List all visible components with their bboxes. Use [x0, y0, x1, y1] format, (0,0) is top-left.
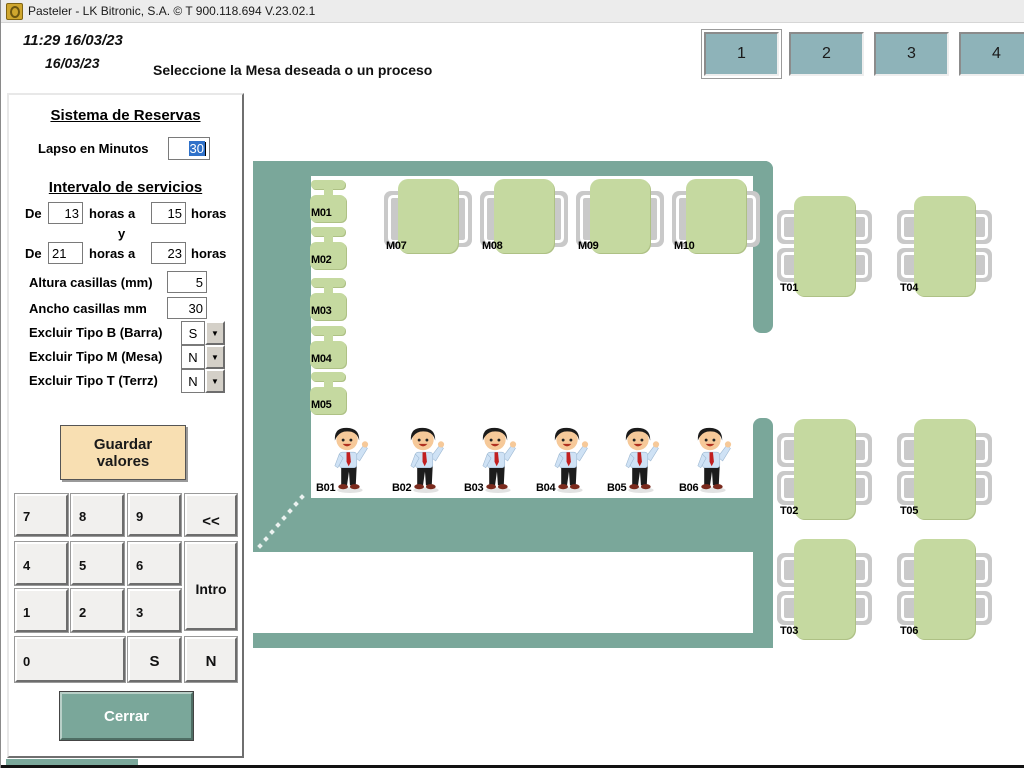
table-label: M10 — [674, 240, 695, 252]
chevron-down-icon[interactable]: ▼ — [205, 321, 225, 345]
excluir-m-value: N — [181, 345, 205, 369]
table-label: M05 — [311, 399, 332, 411]
interval2-middle: horas a — [89, 246, 135, 261]
excluir-b-select[interactable]: S ▼ — [181, 321, 225, 345]
bar-label: B06 — [679, 482, 698, 494]
clock-text: 11:29 16/03/23 — [23, 32, 123, 49]
text-caret — [205, 142, 206, 156]
table-top — [686, 179, 746, 253]
table-t06[interactable]: T06 — [897, 539, 992, 639]
excluir-t-value: N — [181, 369, 205, 393]
table-t04[interactable]: T04 — [897, 196, 992, 296]
keypad-8[interactable]: 8 — [71, 494, 124, 536]
table-label: M07 — [386, 240, 407, 252]
table-m08[interactable]: M08 — [480, 179, 568, 253]
date-text: 16/03/23 — [45, 55, 100, 71]
table-label: M09 — [578, 240, 599, 252]
panel-title: Sistema de Reservas — [9, 107, 242, 124]
keypad-s[interactable]: S — [128, 637, 181, 682]
bar-spot-b03[interactable]: B03 — [464, 424, 526, 496]
lapso-label: Lapso en Minutos — [38, 141, 149, 156]
wall-mid-band — [253, 498, 773, 552]
zone-button-2[interactable]: 2 — [789, 32, 864, 76]
chevron-down-icon[interactable]: ▼ — [205, 369, 225, 393]
table-top — [794, 196, 855, 296]
table-top — [914, 419, 975, 519]
chevron-down-icon[interactable]: ▼ — [205, 345, 225, 369]
keypad-1[interactable]: 1 — [15, 589, 68, 632]
interval1-suffix: horas — [191, 206, 226, 221]
bar-label: B01 — [316, 482, 335, 494]
table-label: T02 — [780, 505, 798, 517]
bar-spot-b06[interactable]: B06 — [679, 424, 741, 496]
keypad-3[interactable]: 3 — [128, 589, 181, 632]
close-button[interactable]: Cerrar — [60, 692, 193, 740]
table-m04[interactable]: M04 — [310, 326, 347, 369]
keypad-2[interactable]: 2 — [71, 589, 124, 632]
interval1-prefix: De — [25, 206, 42, 221]
altura-input[interactable]: 5 — [167, 271, 207, 293]
ancho-label: Ancho casillas mm — [29, 301, 147, 316]
table-m03[interactable]: M03 — [310, 278, 347, 321]
zone-button-1[interactable]: 1 — [704, 32, 779, 76]
table-t02[interactable]: T02 — [777, 419, 872, 519]
excluir-t-label: Excluir Tipo T (Terrz) — [29, 373, 158, 388]
wall-bottom — [253, 633, 773, 648]
interval2-suffix: horas — [191, 246, 226, 261]
table-label: M03 — [311, 305, 332, 317]
instruction-text: Seleccione la Mesa deseada o un proceso — [153, 62, 432, 78]
table-top — [590, 179, 650, 253]
table-label: M04 — [311, 353, 332, 365]
app-window: Pasteler - LK Bitronic, S.A. © T 900.118… — [0, 0, 1024, 768]
table-label: T06 — [900, 625, 918, 637]
table-label: M08 — [482, 240, 503, 252]
zone-button-4[interactable]: 4 — [959, 32, 1024, 76]
save-values-button[interactable]: Guardar valores — [60, 425, 186, 480]
bar-spot-b05[interactable]: B05 — [607, 424, 669, 496]
bar-spot-b01[interactable]: B01 — [316, 424, 378, 496]
table-label: M01 — [311, 207, 332, 219]
interval1-from-input[interactable]: 13 — [48, 202, 83, 224]
keypad-backspace[interactable]: << — [185, 494, 237, 536]
table-t01[interactable]: T01 — [777, 196, 872, 296]
table-label: T01 — [780, 282, 798, 294]
table-label: T04 — [900, 282, 918, 294]
bar-spot-b04[interactable]: B04 — [536, 424, 598, 496]
zone-button-3[interactable]: 3 — [874, 32, 949, 76]
wall-left — [253, 161, 311, 552]
table-m01[interactable]: M01 — [310, 180, 347, 223]
keypad-5[interactable]: 5 — [71, 542, 124, 585]
keypad-intro[interactable]: Intro — [185, 542, 237, 630]
excluir-b-value: S — [181, 321, 205, 345]
bar-spot-b02[interactable]: B02 — [392, 424, 454, 496]
table-top — [914, 196, 975, 296]
window-title: Pasteler - LK Bitronic, S.A. © T 900.118… — [28, 4, 315, 18]
excluir-b-label: Excluir Tipo B (Barra) — [29, 325, 162, 340]
excluir-m-select[interactable]: N ▼ — [181, 345, 225, 369]
bar-label: B03 — [464, 482, 483, 494]
title-bar: Pasteler - LK Bitronic, S.A. © T 900.118… — [1, 0, 1024, 23]
table-m07[interactable]: M07 — [384, 179, 472, 253]
table-top — [794, 539, 855, 639]
excluir-t-select[interactable]: N ▼ — [181, 369, 225, 393]
keypad-7[interactable]: 7 — [15, 494, 68, 536]
excluir-m-label: Excluir Tipo M (Mesa) — [29, 349, 162, 364]
bar-label: B04 — [536, 482, 555, 494]
table-m10[interactable]: M10 — [672, 179, 760, 253]
interval2-to-input[interactable]: 23 — [151, 242, 186, 264]
interval1-middle: horas a — [89, 206, 135, 221]
table-m09[interactable]: M09 — [576, 179, 664, 253]
table-m02[interactable]: M02 — [310, 227, 347, 270]
keypad-4[interactable]: 4 — [15, 542, 68, 585]
table-label: T05 — [900, 505, 918, 517]
app-icon — [6, 3, 23, 20]
interval1-to-input[interactable]: 15 — [151, 202, 186, 224]
altura-label: Altura casillas (mm) — [29, 275, 153, 290]
bar-label: B05 — [607, 482, 626, 494]
table-top — [914, 539, 975, 639]
reservas-panel: Sistema de Reservas Lapso en Minutos 30 … — [7, 93, 244, 758]
table-label: M02 — [311, 254, 332, 266]
table-top — [494, 179, 554, 253]
table-t03[interactable]: T03 — [777, 539, 872, 639]
lapso-value: 30 — [189, 141, 205, 156]
table-top — [794, 419, 855, 519]
lapso-input[interactable]: 30 — [168, 137, 210, 160]
intervalo-title: Intervalo de servicios — [9, 179, 242, 196]
table-m05[interactable]: M05 — [310, 372, 347, 415]
bar-label: B02 — [392, 482, 411, 494]
keypad-6[interactable]: 6 — [128, 542, 181, 585]
interval2-from-input[interactable]: 21 — [48, 242, 83, 264]
keypad-9[interactable]: 9 — [128, 494, 181, 536]
table-label: T03 — [780, 625, 798, 637]
keypad-0[interactable]: 0 — [15, 637, 125, 682]
keypad-n[interactable]: N — [185, 637, 237, 682]
interval2-prefix: De — [25, 246, 42, 261]
wall-top — [253, 161, 773, 176]
ancho-input[interactable]: 30 — [167, 297, 207, 319]
table-t05[interactable]: T05 — [897, 419, 992, 519]
conjunction-label: y — [118, 226, 125, 241]
table-top — [398, 179, 458, 253]
